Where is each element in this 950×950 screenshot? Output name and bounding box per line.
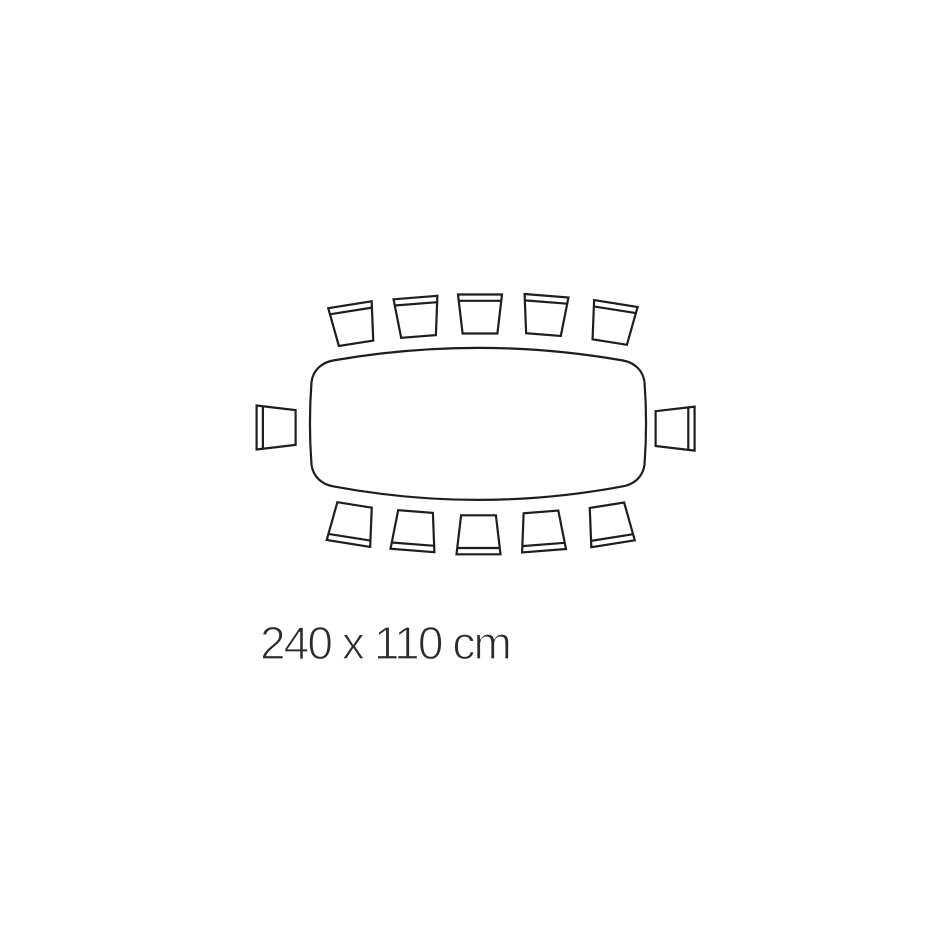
- svg-text:240 x 110 cm: 240 x 110 cm: [260, 617, 510, 669]
